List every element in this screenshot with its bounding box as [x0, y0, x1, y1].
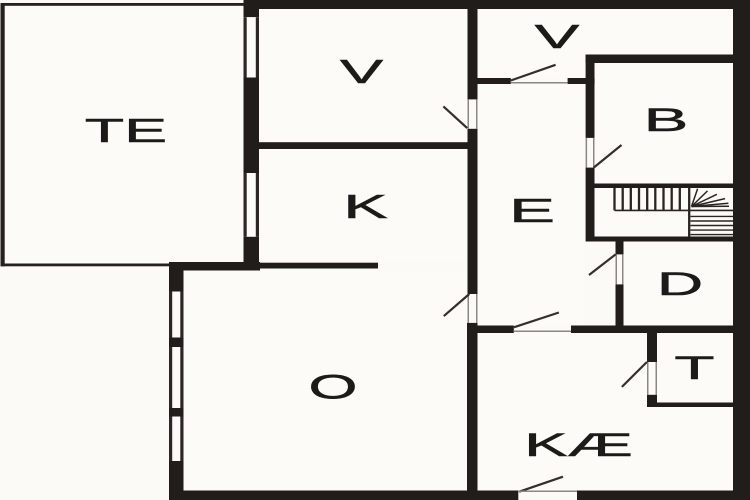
svg-text:K: K [343, 188, 387, 225]
svg-text:B: B [644, 102, 689, 139]
svg-text:T: T [674, 350, 714, 387]
svg-text:V: V [535, 18, 581, 55]
svg-text:D: D [657, 265, 703, 302]
svg-text:TE: TE [85, 111, 167, 149]
svg-text:KÆ: KÆ [524, 427, 633, 463]
svg-text:E: E [509, 192, 555, 229]
svg-text:O: O [309, 367, 358, 405]
svg-text:V: V [340, 52, 384, 90]
